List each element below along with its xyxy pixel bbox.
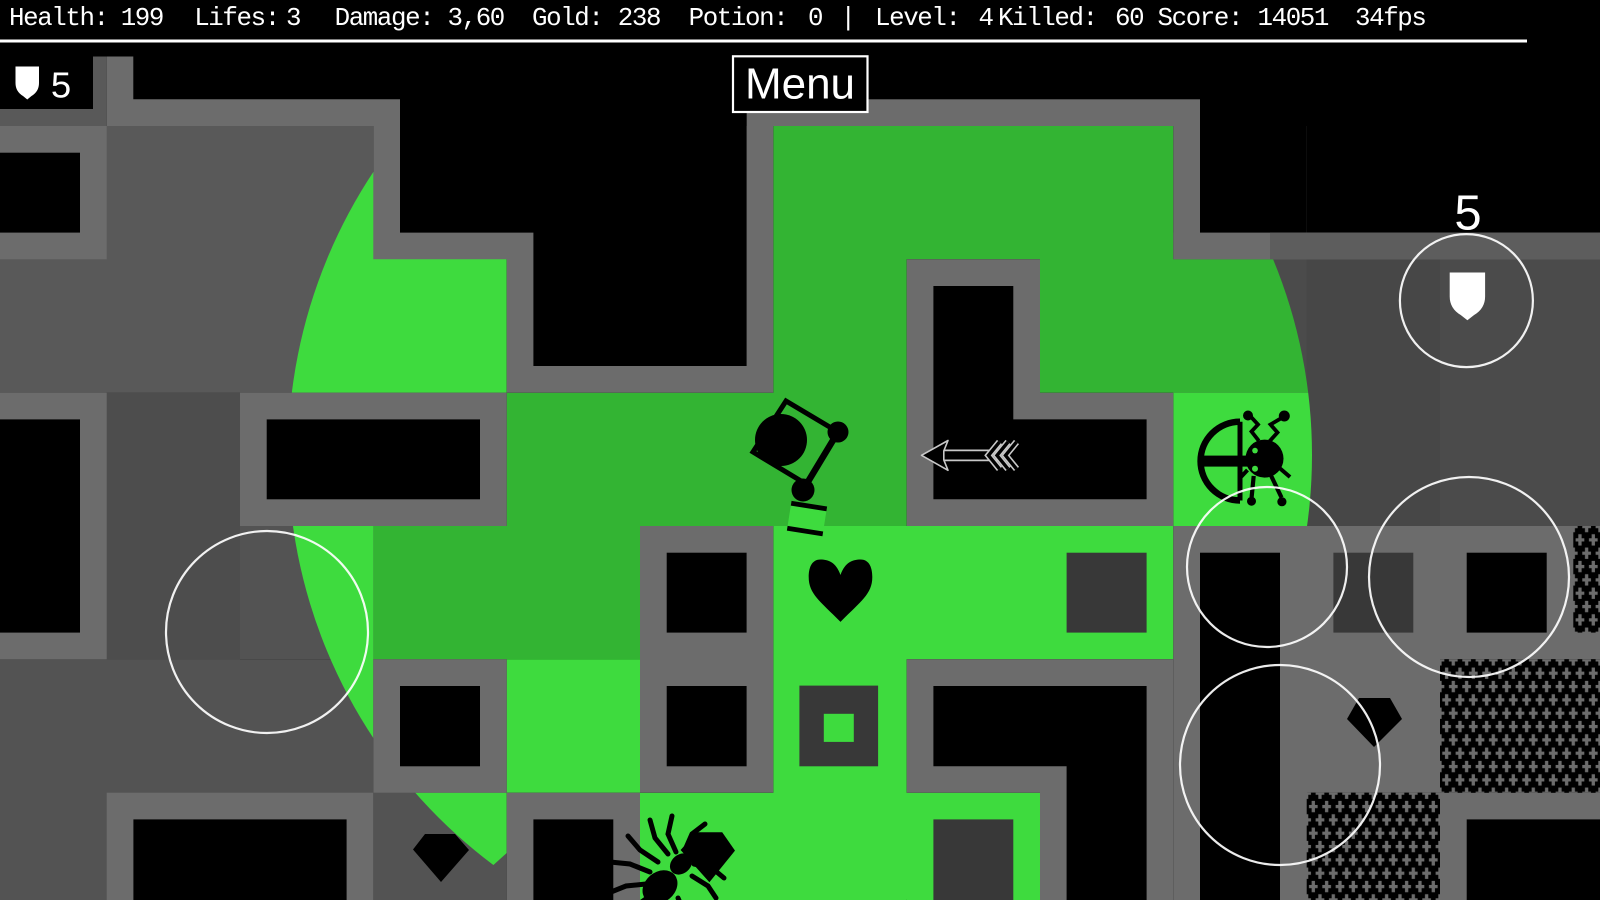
svg-text:34fps: 34fps [1355, 4, 1426, 33]
svg-text:Health:: Health: [9, 4, 108, 33]
svg-text:Menu: Menu [745, 60, 855, 109]
svg-text:199: 199 [121, 4, 163, 33]
svg-text:14051: 14051 [1258, 4, 1329, 33]
svg-text:Score:: Score: [1158, 4, 1243, 33]
svg-text:Gold:: Gold: [532, 4, 603, 33]
svg-text:Lifes:: Lifes: [194, 4, 279, 33]
svg-text:5: 5 [51, 65, 71, 106]
svg-text:0: 0 [808, 4, 822, 33]
svg-text:Potion:: Potion: [689, 4, 788, 33]
svg-text:Killed:: Killed: [998, 4, 1097, 33]
svg-text:3: 3 [286, 4, 300, 33]
svg-text:238: 238 [618, 4, 660, 33]
svg-text:Damage:: Damage: [335, 4, 434, 33]
svg-text:5: 5 [1454, 187, 1481, 241]
svg-text:60: 60 [1115, 4, 1143, 33]
svg-text:3,60: 3,60 [448, 4, 504, 33]
svg-text:Level:: Level: [875, 4, 960, 33]
svg-text:4: 4 [979, 4, 994, 33]
svg-text:|: | [841, 4, 855, 33]
